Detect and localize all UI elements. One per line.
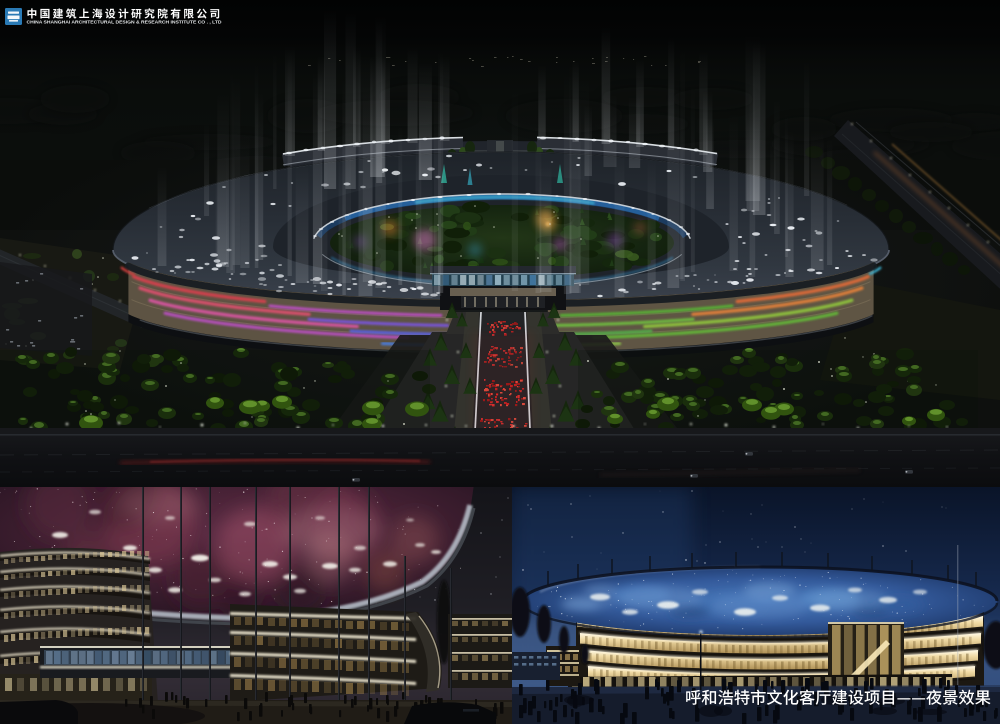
svg-text:CHINA SHANGHAI ARCHITECTURAL D: CHINA SHANGHAI ARCHITECTURAL DESIGN & RE…: [27, 20, 222, 26]
